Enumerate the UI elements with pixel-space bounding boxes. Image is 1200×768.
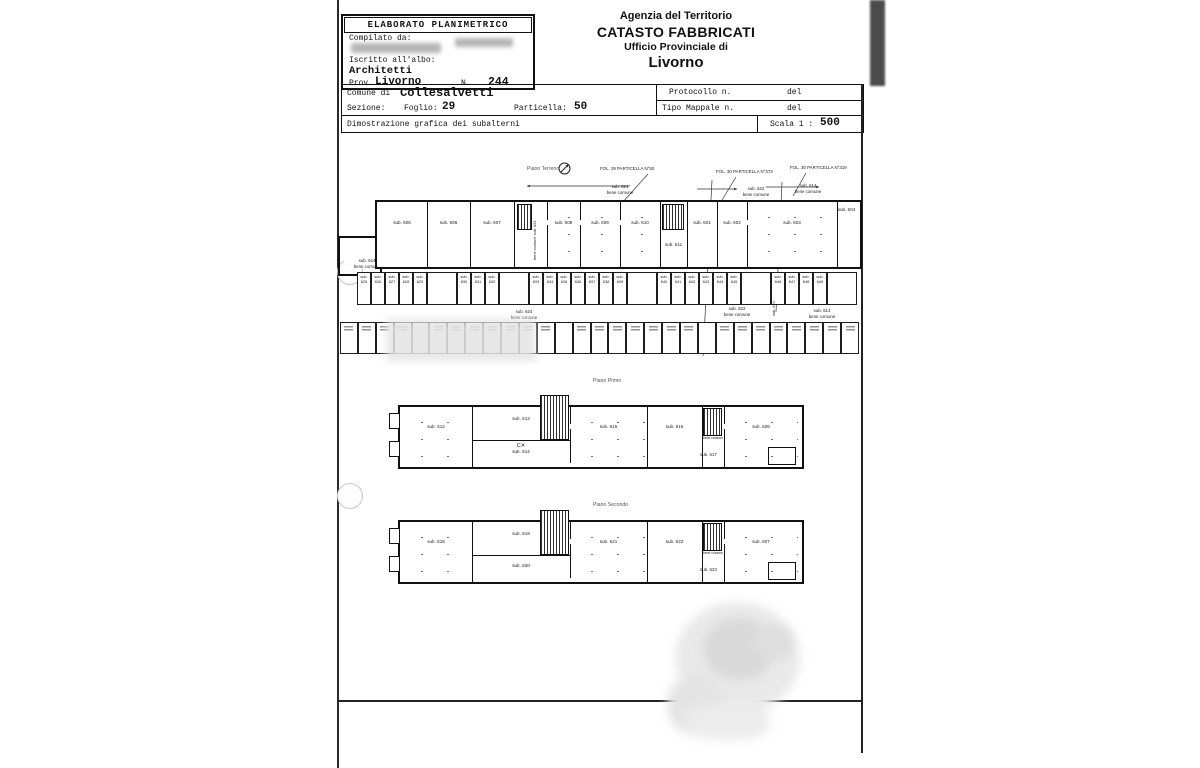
elaborato-title: ELABORATO PLANIMETRICO	[344, 17, 532, 33]
garage-box: sub. 645	[727, 272, 741, 305]
garage-box	[608, 322, 626, 354]
ground-floor-building: sub. 605 sub. 606 sub. 607 bene comune s…	[375, 200, 862, 269]
room: sub. 616	[647, 407, 703, 467]
illegible-label	[577, 326, 586, 332]
common-sub: sub. 614	[472, 449, 570, 454]
garage-box	[741, 272, 771, 305]
agency-line1: Agenzia del Territorio	[560, 10, 792, 24]
illegible-label	[756, 326, 765, 332]
stair-note: bene comune	[702, 436, 724, 440]
room: sub. 615	[570, 407, 648, 467]
common-area-label: sub. 622 bene comune	[732, 186, 780, 197]
garage-box	[770, 322, 788, 354]
garage-box	[805, 322, 823, 354]
illegible-label	[541, 326, 550, 332]
illegible-label	[667, 326, 676, 332]
balcony	[389, 528, 400, 544]
illegible-label	[613, 326, 622, 332]
garage-box	[698, 322, 716, 354]
garage-box: sub. 635	[557, 272, 571, 305]
compilato-label: Compilato da:	[349, 34, 411, 43]
illegible-label	[631, 326, 640, 332]
room: sub. 608	[547, 202, 581, 267]
garage-box	[555, 322, 573, 354]
garage-box	[662, 322, 680, 354]
illegible-label	[810, 326, 819, 332]
north-compass-icon	[558, 162, 571, 175]
garage-box: sub. 639	[613, 272, 627, 305]
iscritto-label: Iscritto all'albo:	[349, 56, 435, 65]
comune-label: Comune di	[347, 89, 390, 98]
garage-box	[537, 322, 555, 354]
garage-box	[499, 272, 529, 305]
balcony	[389, 556, 400, 572]
scala-value: 500	[820, 117, 840, 129]
garage-box: sub. 642	[685, 272, 699, 305]
illegible-label	[774, 326, 783, 332]
common-area-label: sub. 614 bene comune	[798, 308, 846, 319]
illegible-label	[649, 326, 658, 332]
common-room: C✕ sub. 614	[472, 440, 571, 463]
garage-box: sub. 636	[571, 272, 585, 305]
garage-box: sub. 647	[785, 272, 799, 305]
table-divider	[656, 100, 863, 101]
garage-box: sub. 625	[357, 272, 371, 305]
garage-box: sub. 631	[471, 272, 485, 305]
inner-room	[768, 562, 796, 580]
garage-box: sub. 637	[585, 272, 599, 305]
fol-label-1: FOL. 29 PARTICELLA N°50	[600, 166, 654, 171]
foglio-label: Foglio:	[404, 104, 438, 113]
garage-box	[626, 322, 644, 354]
particella-value: 50	[574, 101, 587, 113]
stair-sub-label: sub. 617	[700, 452, 717, 457]
sezione-label: Sezione:	[347, 104, 385, 113]
stair-sub-label: sub. 623	[700, 567, 717, 572]
room: sub. 620	[472, 555, 571, 578]
illegible-label	[720, 326, 729, 332]
garage-box	[734, 322, 752, 354]
garage-box: sub. 627	[385, 272, 399, 305]
garage-box	[716, 322, 734, 354]
stair-hatch	[662, 204, 684, 230]
garage-box	[591, 322, 609, 354]
stairwell: bene comune	[702, 407, 725, 467]
room: sub. 606	[724, 407, 798, 467]
common-area-label: sub. 622 bene comune	[713, 306, 761, 317]
stair-tower-hatch	[540, 510, 569, 555]
agency-line4: Livorno	[560, 54, 792, 73]
room: sub. 601	[687, 202, 718, 267]
illegible-label	[595, 326, 604, 332]
illegible-label	[344, 326, 353, 332]
room: sub. 606	[427, 202, 471, 267]
garage-box: sub. 632	[485, 272, 499, 305]
redacted-name	[351, 43, 441, 53]
balcony	[389, 441, 400, 457]
room: sub. 604	[837, 202, 856, 267]
comune-value: Collesalvetti	[400, 86, 494, 100]
table-divider	[757, 115, 758, 132]
garage-box	[787, 322, 805, 354]
stair-tower-hatch	[540, 395, 569, 440]
plan-title-first: Piano Primo	[593, 378, 621, 384]
info-table: Comune di Collesalvetti Sezione: Foglio:…	[341, 84, 864, 133]
stair-hatch	[703, 408, 722, 436]
common-area-label: sub. 624 bene comune	[596, 184, 644, 195]
garage-row-1: sub. 625sub. 626sub. 627sub. 628sub. 629…	[357, 272, 859, 305]
garage-box	[752, 322, 770, 354]
scan-streak	[870, 0, 885, 86]
illegible-label	[828, 326, 837, 332]
stairwell-passage: bene comune sub. 624	[514, 202, 548, 267]
garage-box: sub. 640	[657, 272, 671, 305]
garage-box	[827, 272, 857, 305]
room: sub. 612	[400, 407, 473, 467]
garage-box	[841, 322, 859, 354]
room: sub. 602	[717, 202, 748, 267]
vertical-strip-label: sub. 624	[772, 288, 777, 316]
garage-box: sub. 626	[371, 272, 385, 305]
first-floor-building: sub. 612 sub. 613 C✕ sub. 614 sub. 615 s…	[398, 405, 804, 469]
garage-box: sub. 644	[713, 272, 727, 305]
garage-box	[573, 322, 591, 354]
garage-box: sub. 643	[699, 272, 713, 305]
garage-box	[823, 322, 841, 354]
garage-box: sub. 633	[529, 272, 543, 305]
agency-line3: Ufficio Provinciale di	[560, 41, 792, 54]
redacted-name	[455, 38, 513, 47]
stair-hatch	[517, 204, 532, 230]
room: sub. 618	[400, 522, 473, 582]
passage-label: bene comune sub. 624	[533, 206, 538, 260]
garage-box: sub. 638	[599, 272, 613, 305]
garage-box: sub. 628	[399, 272, 413, 305]
mappale-label: Tipo Mappale n.	[662, 104, 734, 113]
plan-title-ground: Piano Terreno	[527, 166, 559, 172]
elaborato-box: ELABORATO PLANIMETRICO Compilato da: Isc…	[341, 14, 535, 90]
room: sub. 610	[620, 202, 661, 267]
fol-label-2: FOL. 30 PARTICELLA N°373	[716, 169, 773, 174]
agency-header: Agenzia del Territorio CATASTO FABBRICAT…	[560, 10, 792, 73]
stairwell: bene comune	[702, 522, 725, 582]
foglio-value: 29	[442, 101, 455, 113]
garage-box: sub. 630	[457, 272, 471, 305]
room: sub. 603	[747, 202, 838, 267]
illegible-label	[738, 326, 747, 332]
room: sub. 605	[377, 202, 428, 267]
garage-box	[680, 322, 698, 354]
stair-note: bene comune	[702, 551, 724, 555]
watermark-smudge	[386, 319, 536, 361]
particella-label: Particella:	[514, 104, 567, 113]
common-area-label: sub. 614 bene comune	[784, 183, 832, 194]
illegible-label	[684, 326, 693, 332]
room: sub. 622	[647, 522, 703, 582]
room: sub. 607	[470, 202, 515, 267]
garage-box: sub. 649	[813, 272, 827, 305]
garage-box: sub. 648	[799, 272, 813, 305]
fol-label-3: FOL. 30 PARTICELLA N°319	[790, 165, 847, 170]
room: sub. 607	[724, 522, 798, 582]
garage-box	[358, 322, 376, 354]
stairwell: sub. 611	[660, 202, 688, 267]
mappale-del: del	[787, 104, 801, 113]
agency-line2: CATASTO FABBRICATI	[560, 24, 792, 42]
second-floor-building: sub. 618 sub. 619 sub. 620 sub. 621 sub.…	[398, 520, 804, 584]
stair-hatch	[703, 523, 722, 551]
garage-box: sub. 641	[671, 272, 685, 305]
illegible-label	[362, 326, 371, 332]
plan-title-second: Piano Secondo	[593, 502, 628, 508]
room: sub. 621	[570, 522, 648, 582]
illegible-label	[792, 326, 801, 332]
room: sub. 609	[580, 202, 621, 267]
scanned-cadastral-document: ELABORATO PLANIMETRICO Compilato da: Isc…	[0, 0, 1200, 768]
scala-label: Scala 1 :	[770, 120, 813, 129]
dimostrazione-label: Dimostrazione grafica dei subalterni	[347, 120, 520, 129]
watermark-stamp	[655, 592, 835, 752]
table-divider	[342, 115, 863, 116]
balcony	[389, 413, 400, 429]
garage-box: sub. 634	[543, 272, 557, 305]
protocollo-label: Protocollo n.	[669, 88, 731, 97]
garage-box	[340, 322, 358, 354]
garage-box	[627, 272, 657, 305]
inner-room	[768, 447, 796, 465]
garage-box	[644, 322, 662, 354]
protocollo-del: del	[787, 88, 801, 97]
garage-box: sub. 629	[413, 272, 427, 305]
garage-box	[427, 272, 457, 305]
illegible-label	[846, 326, 855, 332]
